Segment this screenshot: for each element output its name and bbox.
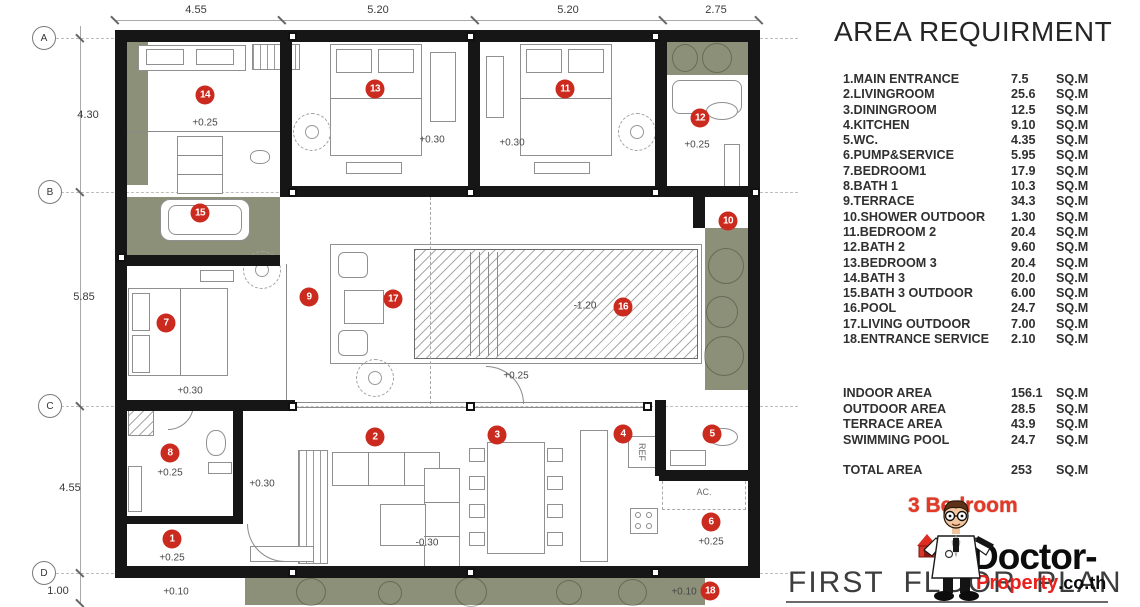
pool-step	[488, 252, 489, 356]
blanket-line	[180, 288, 181, 376]
area-row-value: 43.9	[1011, 417, 1036, 431]
area-row: OUTDOOR AREA28.5SQ.M	[828, 402, 1135, 418]
grid-bubble-C: C	[38, 394, 62, 418]
area-row: 7.BEDROOM117.9SQ.M	[828, 164, 1135, 179]
area-row: 17.LIVING OUTDOOR7.00SQ.M	[828, 317, 1135, 332]
plant	[704, 336, 744, 376]
room-marker-18: 18	[701, 582, 720, 601]
area-row-name: OUTDOOR AREA	[843, 402, 946, 416]
room-marker-6: 6	[702, 513, 721, 532]
area-row-name: 5.WC.	[843, 133, 878, 147]
area-row-unit: SQ.M	[1056, 103, 1088, 117]
area-row: 12.BATH 29.60SQ.M	[828, 240, 1135, 255]
room-marker-2: 2	[366, 428, 385, 447]
level-label: +0.25	[503, 371, 528, 382]
toilet	[706, 102, 738, 120]
doctor-mascot-icon	[916, 498, 996, 602]
sofa	[424, 468, 460, 570]
grid-bubble-A: A	[32, 26, 56, 50]
plant	[702, 43, 732, 73]
dimension-top: 2.75	[705, 4, 726, 16]
area-row: 13.BEDROOM 320.4SQ.M	[828, 256, 1135, 271]
area-row-value: 5.95	[1011, 148, 1036, 162]
area-row: 4.KITCHEN9.10SQ.M	[828, 118, 1135, 133]
level-label: +0.10	[163, 587, 188, 598]
area-row-unit: SQ.M	[1056, 210, 1088, 224]
plant	[672, 44, 698, 72]
dimension-top: 5.20	[367, 4, 388, 16]
area-row-unit: SQ.M	[1056, 133, 1088, 147]
pillow	[336, 49, 372, 73]
area-row: TERRACE AREA43.9SQ.M	[828, 417, 1135, 433]
wall	[655, 30, 667, 186]
plant	[296, 578, 326, 606]
area-row-unit: SQ.M	[1056, 301, 1088, 315]
wall	[233, 400, 243, 524]
area-row: 6.PUMP&SERVICE5.95SQ.M	[828, 148, 1135, 163]
total-value: 253	[1011, 463, 1032, 477]
area-row-name: 14.BATH 3	[843, 271, 905, 285]
column	[466, 402, 475, 411]
area-row-name: 3.DININGROOM	[843, 103, 937, 117]
toilet	[206, 430, 226, 456]
area-row: 3.DININGROOM12.5SQ.M	[828, 103, 1135, 118]
area-total-row: TOTAL AREA 253 SQ.M	[828, 463, 1135, 479]
column	[651, 568, 660, 577]
area-row-name: 6.PUMP&SERVICE	[843, 148, 954, 162]
area-row-value: 24.7	[1011, 433, 1036, 447]
bed-bench	[534, 162, 590, 174]
burner	[635, 512, 641, 518]
outdoor-table	[344, 290, 384, 324]
room-marker-9: 9	[300, 288, 319, 307]
grid-bubble-B: B	[38, 180, 62, 204]
area-row-unit: SQ.M	[1056, 256, 1088, 270]
area-row-unit: SQ.M	[1056, 332, 1088, 346]
area-row: 18.ENTRANCE SERVICE2.10SQ.M	[828, 332, 1135, 347]
ceiling-fan-icon	[293, 113, 331, 151]
partition-line	[127, 131, 280, 132]
area-row-name: 16.POOL	[843, 301, 896, 315]
area-row-unit: SQ.M	[1056, 317, 1088, 331]
outdoor-chair	[338, 252, 368, 278]
dimension-left: 1.00	[47, 585, 68, 597]
pillow	[132, 335, 150, 373]
wall	[115, 566, 760, 578]
area-row-name: 11.BEDROOM 2	[843, 225, 936, 239]
area-row: 1.MAIN ENTRANCE7.5SQ.M	[828, 72, 1135, 87]
sofa-cushion-line	[424, 502, 460, 503]
plan-label-ref: REF	[637, 443, 647, 461]
wall	[468, 30, 480, 186]
sofa-cushion-line	[368, 452, 369, 486]
burner	[635, 523, 641, 529]
area-row-unit: SQ.M	[1056, 87, 1088, 101]
room-marker-12: 12	[691, 109, 710, 128]
chair	[469, 476, 485, 490]
area-row: 8.BATH 110.3SQ.M	[828, 179, 1135, 194]
area-row-value: 28.5	[1011, 402, 1036, 416]
area-row-unit: SQ.M	[1056, 286, 1088, 300]
room-marker-16: 16	[614, 298, 633, 317]
pillow	[132, 293, 150, 331]
column	[651, 32, 660, 41]
room-marker-13: 13	[366, 80, 385, 99]
dining-table	[487, 442, 545, 554]
pool-step	[497, 252, 498, 356]
chair	[547, 532, 563, 546]
area-row: 5.WC.4.35SQ.M	[828, 133, 1135, 148]
area-row: 11.BEDROOM 220.4SQ.M	[828, 225, 1135, 240]
pillow	[568, 49, 604, 73]
level-label: +0.30	[177, 386, 202, 397]
area-row-unit: SQ.M	[1056, 225, 1088, 239]
area-row-unit: SQ.M	[1056, 194, 1088, 208]
dimension-left: 4.55	[59, 482, 80, 494]
wall	[127, 516, 233, 524]
dimension-top: 5.20	[557, 4, 578, 16]
area-row-unit: SQ.M	[1056, 433, 1088, 447]
chair	[547, 448, 563, 462]
chair	[469, 504, 485, 518]
area-summary-list: INDOOR AREA156.1SQ.MOUTDOOR AREA28.5SQ.M…	[828, 386, 1135, 448]
plant	[618, 579, 647, 606]
area-row-unit: SQ.M	[1056, 402, 1088, 416]
area-row-name: 18.ENTRANCE SERVICE	[843, 332, 989, 346]
area-requirement-panel: AREA REQUIRMENT 1.MAIN ENTRANCE7.5SQ.M2.…	[828, 16, 1135, 48]
area-row-name: 13.BEDROOM 3	[843, 256, 937, 270]
room-marker-15: 15	[191, 204, 210, 223]
area-row-value: 9.60	[1011, 240, 1036, 254]
plant	[378, 581, 402, 605]
area-table-title: AREA REQUIRMENT	[828, 16, 1135, 48]
plant	[556, 580, 582, 605]
dimension-top: 4.55	[185, 4, 206, 16]
area-row-value: 7.00	[1011, 317, 1036, 331]
wardrobe	[252, 44, 300, 70]
sink	[196, 49, 234, 65]
plan-label-ac: AC.	[696, 487, 711, 497]
area-row-name: SWIMMING POOL	[843, 433, 949, 447]
wall	[292, 186, 760, 197]
area-row-value: 20.4	[1011, 256, 1036, 270]
area-row-name: 12.BATH 2	[843, 240, 905, 254]
room-marker-8: 8	[161, 444, 180, 463]
column	[466, 32, 475, 41]
column	[117, 253, 126, 262]
bed-bench	[346, 162, 402, 174]
wall	[115, 255, 280, 266]
chair	[547, 476, 563, 490]
door-leaf	[724, 144, 740, 188]
sofa-cushion-line	[404, 452, 405, 486]
column	[288, 188, 297, 197]
area-row-value: 24.7	[1011, 301, 1036, 315]
level-label: -1.20	[574, 301, 597, 312]
area-row-unit: SQ.M	[1056, 179, 1088, 193]
pillow	[526, 49, 562, 73]
area-row-value: 4.35	[1011, 133, 1036, 147]
pool-step	[470, 252, 471, 356]
wardrobe	[486, 56, 504, 118]
total-row: TOTAL AREA 253 SQ.M	[828, 463, 1135, 479]
room-marker-5: 5	[703, 425, 722, 444]
total-unit: SQ.M	[1056, 463, 1088, 477]
area-row: INDOOR AREA156.1SQ.M	[828, 386, 1135, 402]
area-row-unit: SQ.M	[1056, 271, 1088, 285]
area-row-value: 20.0	[1011, 271, 1036, 285]
pool-step	[479, 252, 480, 356]
area-row-name: 1.MAIN ENTRANCE	[843, 72, 959, 86]
area-row-name: 4.KITCHEN	[843, 118, 909, 132]
level-label: +0.25	[159, 553, 184, 564]
outdoor-chair	[338, 330, 368, 356]
level-label: +0.25	[684, 140, 709, 151]
column	[643, 402, 652, 411]
side-table	[200, 270, 234, 282]
column	[466, 568, 475, 577]
area-row-value: 10.3	[1011, 179, 1036, 193]
burner	[646, 523, 652, 529]
sink-counter	[670, 450, 706, 466]
level-label: +0.25	[192, 118, 217, 129]
area-row: 10.SHOWER OUTDOOR1.30SQ.M	[828, 210, 1135, 225]
level-label: +0.10	[671, 587, 696, 598]
area-row-name: 8.BATH 1	[843, 179, 898, 193]
level-label: +0.25	[698, 537, 723, 548]
area-items-list: 1.MAIN ENTRANCE7.5SQ.M2.LIVINGROOM25.6SQ…	[828, 72, 1135, 347]
area-row: 2.LIVINGROOM25.6SQ.M	[828, 87, 1135, 102]
shelf-line	[177, 155, 223, 156]
area-row-value: 156.1	[1011, 386, 1043, 400]
level-label: +0.30	[499, 138, 524, 149]
room-marker-11: 11	[556, 80, 575, 99]
shelf-line	[177, 174, 223, 175]
total-label: TOTAL AREA	[843, 463, 922, 477]
stove	[630, 508, 658, 534]
pillow	[378, 49, 414, 73]
area-row-unit: SQ.M	[1056, 240, 1088, 254]
chair	[469, 448, 485, 462]
column	[288, 402, 297, 411]
wall	[693, 197, 705, 228]
area-row-unit: SQ.M	[1056, 417, 1088, 431]
column	[288, 32, 297, 41]
level-label: -0.30	[416, 538, 439, 549]
wall	[115, 30, 127, 578]
room-marker-17: 17	[384, 290, 403, 309]
kitchen-island	[580, 430, 608, 562]
area-row-value: 17.9	[1011, 164, 1036, 178]
area-row-unit: SQ.M	[1056, 148, 1088, 162]
area-row-name: 7.BEDROOM1	[843, 164, 926, 178]
area-row-unit: SQ.M	[1056, 72, 1088, 86]
room-marker-14: 14	[196, 86, 215, 105]
wall	[115, 400, 295, 411]
area-row-unit: SQ.M	[1056, 386, 1088, 400]
level-label: +0.25	[157, 468, 182, 479]
sink	[146, 49, 184, 65]
plant	[706, 296, 738, 328]
column	[751, 188, 760, 197]
ceiling-fan-icon	[618, 113, 656, 151]
wall	[659, 470, 748, 481]
area-row-value: 9.10	[1011, 118, 1036, 132]
area-row-value: 6.00	[1011, 286, 1036, 300]
doctor-property-watermark: 3 Bedroom Doctor- Pro	[898, 492, 1140, 604]
area-row-unit: SQ.M	[1056, 118, 1088, 132]
column	[288, 568, 297, 577]
room-marker-3: 3	[488, 426, 507, 445]
area-row-name: 9.TERRACE	[843, 194, 914, 208]
grid-bubble-D: D	[32, 561, 56, 585]
wall	[655, 400, 666, 476]
plant	[455, 577, 487, 607]
room-marker-10: 10	[719, 212, 738, 231]
area-row: 9.TERRACE34.3SQ.M	[828, 194, 1135, 209]
closet-shelves	[177, 136, 223, 194]
area-row-name: TERRACE AREA	[843, 417, 943, 431]
wall	[280, 30, 292, 197]
area-row-name: 15.BATH 3 OUTDOOR	[843, 286, 973, 300]
area-row-value: 25.6	[1011, 87, 1036, 101]
chair	[547, 504, 563, 518]
area-row: 14.BATH 320.0SQ.M	[828, 271, 1135, 286]
column	[466, 188, 475, 197]
toilet	[250, 150, 270, 164]
burner	[646, 512, 652, 518]
glass-wall	[286, 264, 287, 404]
wall	[748, 30, 760, 578]
area-row-name: 2.LIVINGROOM	[843, 87, 935, 101]
area-row-value: 7.5	[1011, 72, 1029, 86]
level-label: +0.30	[249, 479, 274, 490]
area-row-value: 2.10	[1011, 332, 1036, 346]
area-row-value: 20.4	[1011, 225, 1036, 239]
plant	[708, 248, 744, 284]
area-row: SWIMMING POOL24.7SQ.M	[828, 433, 1135, 449]
area-row-value: 34.3	[1011, 194, 1036, 208]
area-row-name: 10.SHOWER OUTDOOR	[843, 210, 985, 224]
area-row-name: 17.LIVING OUTDOOR	[843, 317, 970, 331]
sink	[208, 462, 232, 474]
area-row: 16.POOL24.7SQ.M	[828, 301, 1135, 316]
level-label: +0.30	[419, 135, 444, 146]
vanity	[128, 466, 142, 512]
center-dashed-line	[430, 197, 431, 404]
column	[651, 188, 660, 197]
dimension-left: 5.85	[73, 291, 94, 303]
area-row-value: 12.5	[1011, 103, 1036, 117]
room-marker-7: 7	[157, 314, 176, 333]
room-marker-4: 4	[614, 425, 633, 444]
dimension-left: 4.30	[77, 109, 98, 121]
room-marker-1: 1	[163, 530, 182, 549]
brand-subtitle-domain: .co.th	[1058, 573, 1106, 593]
area-row-name: INDOOR AREA	[843, 386, 932, 400]
area-row-unit: SQ.M	[1056, 164, 1088, 178]
area-row-value: 1.30	[1011, 210, 1036, 224]
ceiling-fan-icon	[356, 359, 394, 397]
area-row: 15.BATH 3 OUTDOOR6.00SQ.M	[828, 286, 1135, 301]
pool-water	[414, 249, 698, 359]
desk	[430, 52, 456, 122]
floor-plan-sheet: ABCD4.555.205.202.754.305.854.551.001234…	[0, 0, 1140, 607]
chair	[469, 532, 485, 546]
